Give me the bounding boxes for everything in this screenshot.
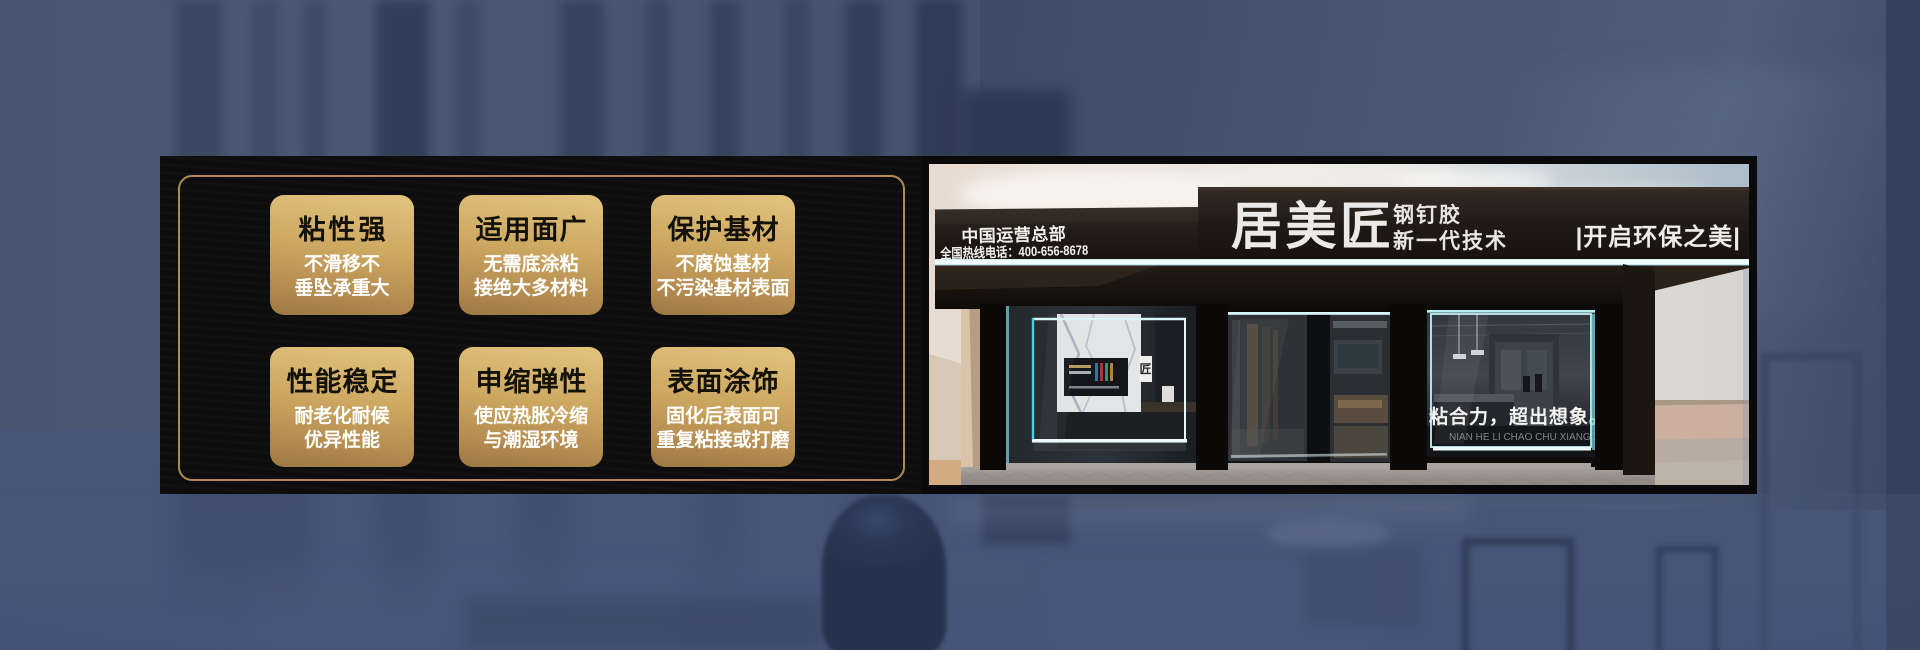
svg-text:钢钉胶: 钢钉胶 — [1393, 203, 1462, 227]
svg-text:居美匠: 居美匠 — [1231, 198, 1395, 255]
svg-text:|开启环保之美|: |开启环保之美| — [1576, 223, 1741, 251]
svg-text:匠: 匠 — [1140, 362, 1152, 376]
svg-text:新一代技术: 新一代技术 — [1393, 229, 1508, 253]
